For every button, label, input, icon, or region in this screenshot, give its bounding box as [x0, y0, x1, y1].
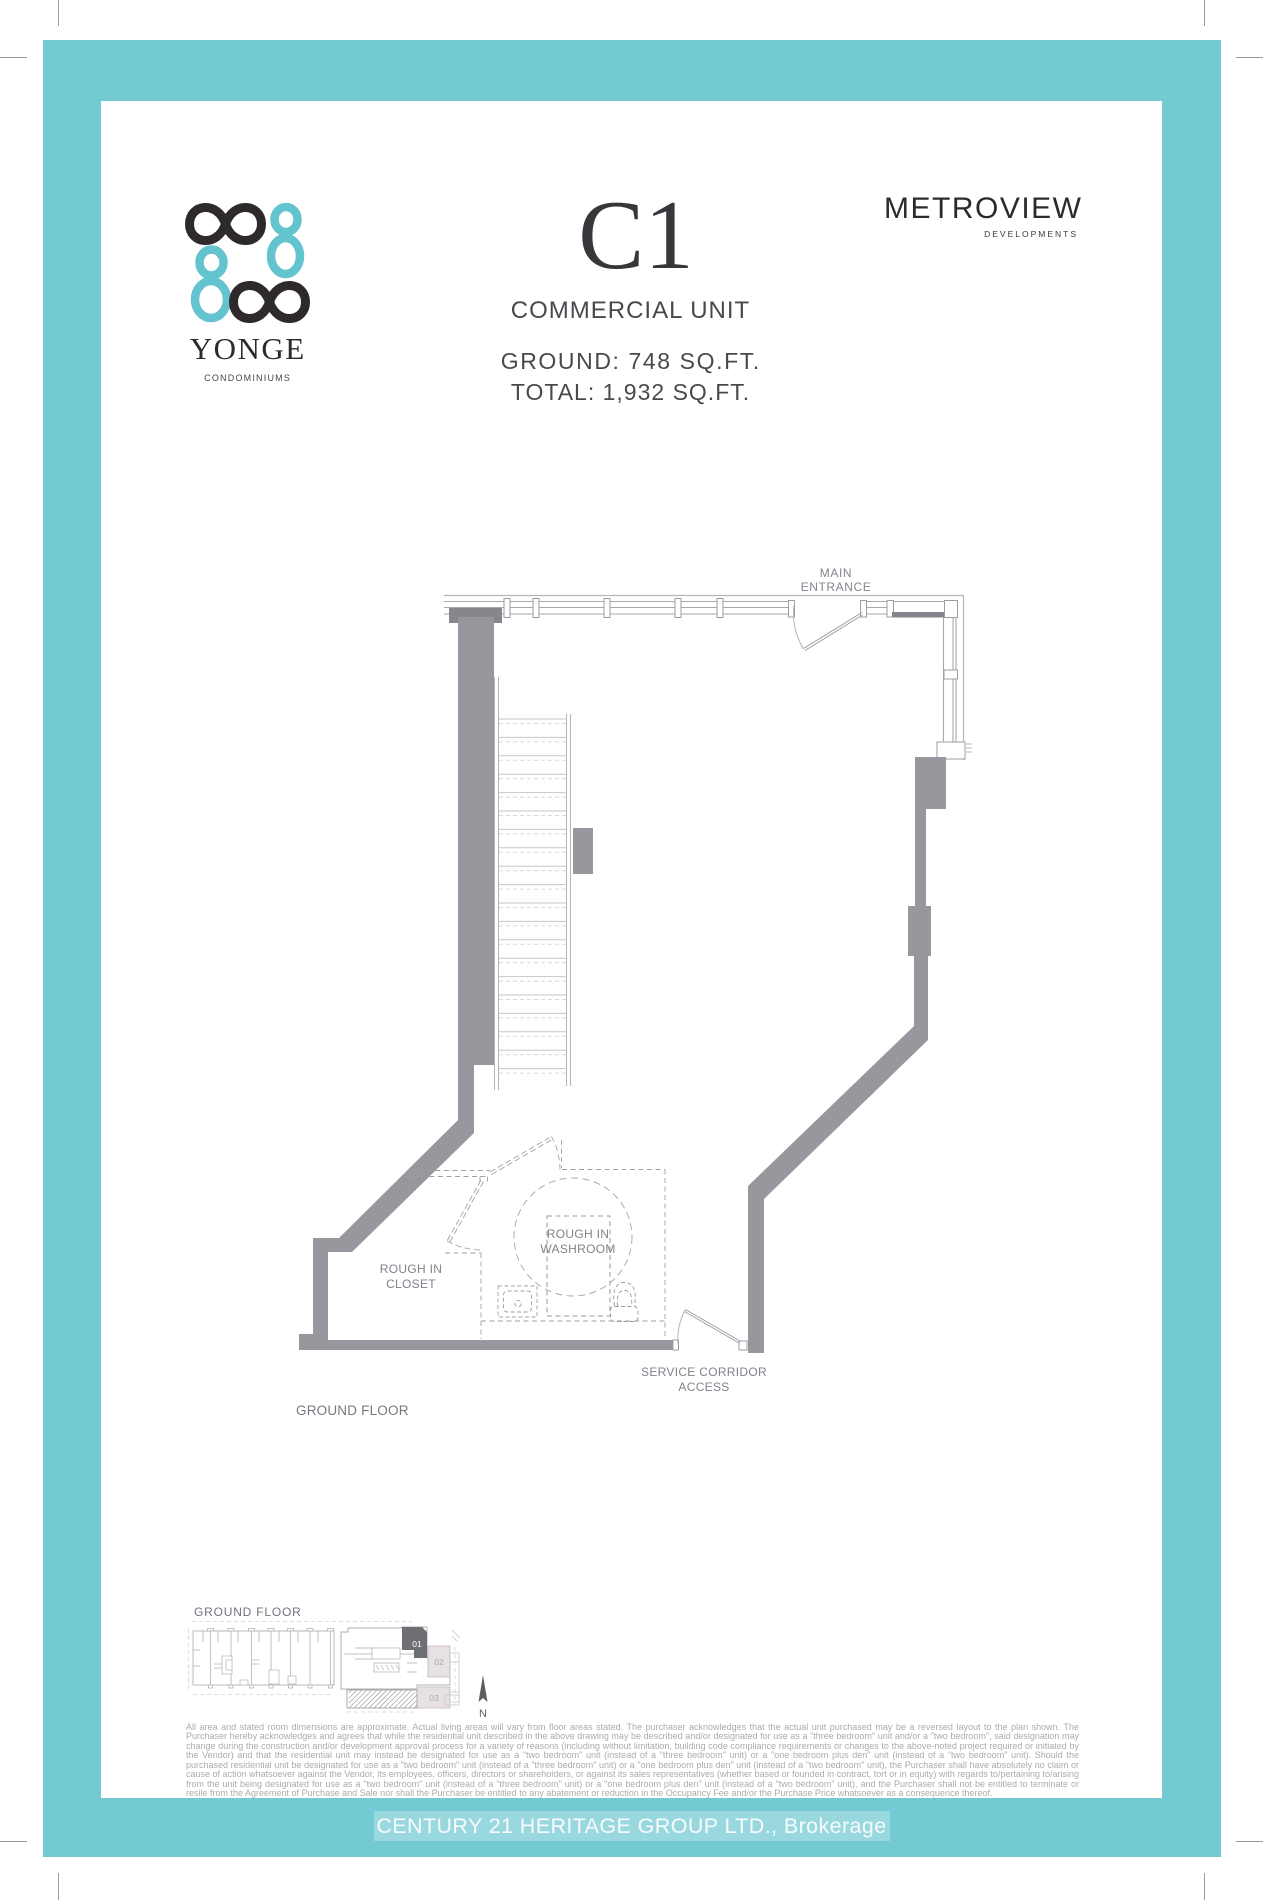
- svg-text:02: 02: [434, 1657, 444, 1667]
- svg-text:01: 01: [412, 1639, 422, 1649]
- svg-text:N: N: [479, 1708, 487, 1720]
- svg-text:03: 03: [429, 1693, 439, 1703]
